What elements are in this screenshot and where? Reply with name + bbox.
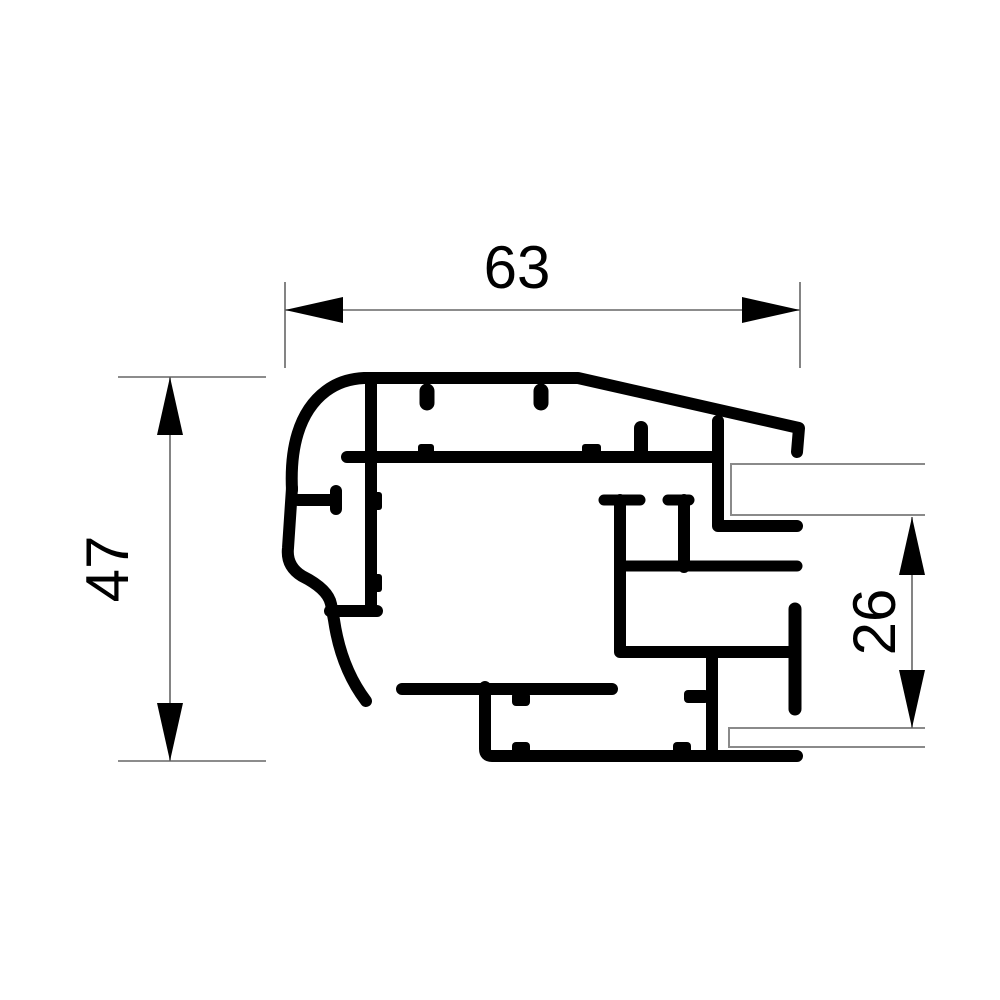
glazing-rebate-wall	[718, 421, 797, 526]
left-wall-tab-lower	[370, 574, 382, 592]
technical-drawing-canvas: 63 47 26	[0, 0, 1000, 1000]
glass-pane-upper	[731, 464, 925, 515]
divider-wall-stub	[684, 690, 709, 703]
profile-drawing-svg: 63 47 26	[0, 0, 1000, 1000]
left-wall-tab-upper	[370, 492, 382, 510]
nub-top-left	[512, 692, 530, 706]
dim-47-arrow-top-icon	[157, 377, 183, 435]
dim-63-arrow-left-icon	[285, 297, 343, 323]
dim-63-arrow-right-icon	[742, 297, 800, 323]
profile-cross-section	[288, 378, 799, 756]
glass-pane-lower	[729, 728, 925, 747]
nub-bottom-right	[673, 742, 691, 755]
dim-26-label: 26	[841, 589, 908, 656]
dimension-overall-width: 63	[285, 234, 800, 368]
dim-47-label: 47	[74, 536, 141, 603]
dim-26-arrow-top-icon	[899, 517, 925, 575]
nub-bottom-left	[512, 742, 530, 755]
profile-outer-left-tail	[288, 488, 366, 701]
dimension-glazing-gap: 26	[841, 517, 925, 728]
dim-63-label: 63	[484, 234, 551, 301]
shelf-bump-left	[418, 444, 434, 454]
dim-26-arrow-bottom-icon	[899, 670, 925, 728]
shelf-bump-right	[582, 444, 601, 454]
dim-47-arrow-bottom-icon	[157, 703, 183, 761]
bottom-edge	[485, 687, 797, 756]
dimension-overall-height: 47	[74, 377, 266, 761]
